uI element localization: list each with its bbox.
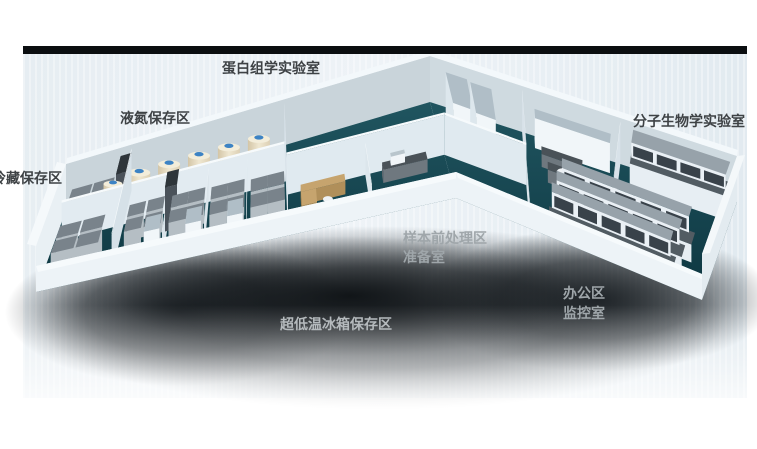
label-sample-pretreatment: 样本前处理区 bbox=[403, 232, 487, 246]
label-proteomics-lab: 蛋白组学实验室 bbox=[222, 62, 320, 76]
label-liquid-nitrogen-area: 液氮保存区 bbox=[120, 112, 190, 126]
tank-cap bbox=[135, 169, 144, 173]
floorplan-viewport: 蛋白组学实验室 液氮保存区 冷藏保存区 分子生物学实验室 样本前处理区 准备室 … bbox=[0, 0, 757, 449]
label-cold-storage-area: 冷藏保存区 bbox=[0, 172, 62, 186]
label-monitoring-room: 监控室 bbox=[563, 307, 605, 321]
backdrop-top-bar bbox=[23, 46, 747, 54]
label-office-area: 办公区 bbox=[563, 287, 605, 301]
label-molecular-biology-lab: 分子生物学实验室 bbox=[633, 115, 745, 129]
label-ult-freezer-area: 超低温冰箱保存区 bbox=[280, 318, 392, 332]
tank-cap bbox=[254, 135, 263, 139]
tank-cap bbox=[194, 152, 203, 156]
label-prep-room: 准备室 bbox=[403, 251, 445, 265]
tank-cap bbox=[224, 144, 233, 148]
tank-cap bbox=[109, 181, 117, 185]
tank-cap bbox=[165, 161, 174, 165]
